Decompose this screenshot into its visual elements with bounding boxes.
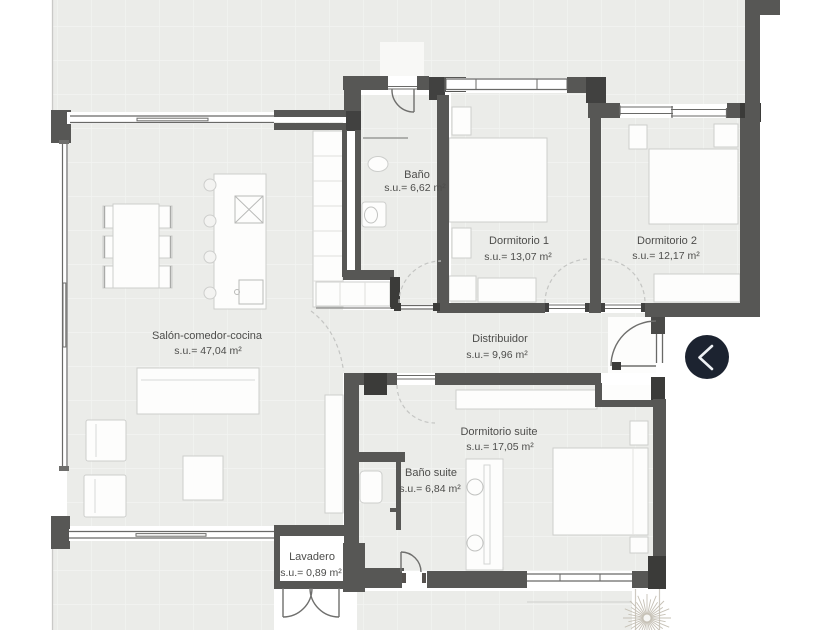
svg-text:Baño: Baño [404,169,430,181]
svg-text:Dormitorio 1: Dormitorio 1 [489,235,549,247]
svg-text:s.u.= 9,96 m²: s.u.= 9,96 m² [466,349,528,361]
svg-text:Salón-comedor-cocina: Salón-comedor-cocina [152,330,263,342]
svg-text:s.u.= 17,05 m²: s.u.= 17,05 m² [466,441,534,453]
svg-text:s.u.= 47,04 m²: s.u.= 47,04 m² [174,345,242,357]
svg-text:s.u.= 6,62 m²: s.u.= 6,62 m² [384,182,446,194]
svg-text:s.u.= 0,89 m²: s.u.= 0,89 m² [280,567,342,579]
svg-text:Baño suite: Baño suite [405,467,457,479]
svg-text:Dormitorio 2: Dormitorio 2 [637,235,697,247]
svg-text:s.u.= 6,84 m²: s.u.= 6,84 m² [399,483,461,495]
svg-text:s.u.= 13,07 m²: s.u.= 13,07 m² [484,251,552,263]
svg-text:Distribuidor: Distribuidor [472,333,528,345]
svg-text:Lavadero: Lavadero [289,551,335,563]
svg-text:s.u.= 12,17 m²: s.u.= 12,17 m² [632,250,700,262]
svg-text:Dormitorio suite: Dormitorio suite [460,426,537,438]
